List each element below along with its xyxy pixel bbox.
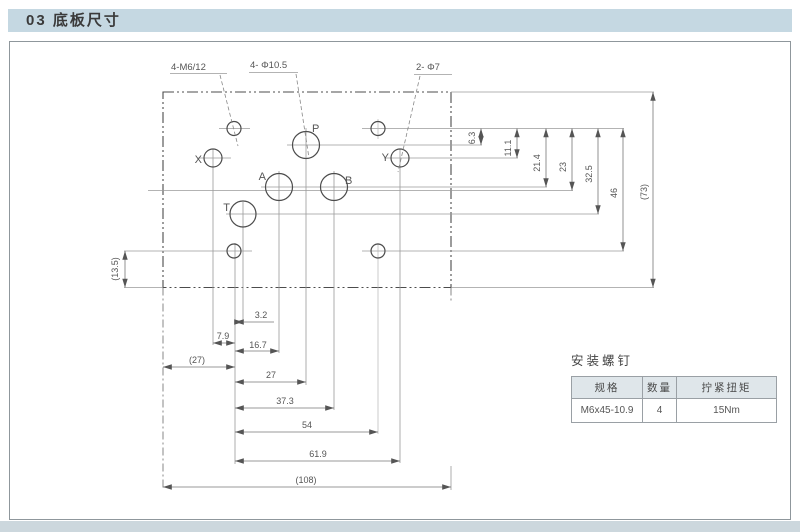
callout-leader-m6 [220,75,238,146]
dim-label-54: 54 [302,420,312,430]
dim-label-21.4: 21.4 [532,154,542,172]
callout-pilot-ports: 2- Φ7 [416,62,440,73]
dimension-lines [125,92,653,487]
technical-drawing: 6.3 11.1 21.4 23 32.5 46 (73) (13.5) 3.2… [0,0,800,532]
dim-label-32.5: 32.5 [584,165,594,183]
bottom-strip [0,521,800,532]
port-label-b: B [345,175,352,187]
col-header-spec: 规格 [572,377,643,399]
col-header-quantity: 数量 [643,377,677,399]
dim-label-7.9: 7.9 [217,331,230,341]
plate-rect [163,92,451,288]
port-label-x: X [195,154,203,166]
callout-main-ports: 4- Φ10.5 [250,60,287,71]
dim-label-46: 46 [609,188,619,198]
mounting-screw-block: 安装螺钉 规格 数量 拧紧扭矩 M6x45-10.9 4 15Nm [571,350,777,423]
dim-label-3.2: 3.2 [255,310,268,320]
page: 03 底板尺寸 [0,0,800,532]
dim-label-6.3: 6.3 [467,132,477,145]
dim-label-37.3: 37.3 [276,396,294,406]
port-label-y: Y [382,152,390,164]
dim-label-23: 23 [558,162,568,172]
cell-spec: M6x45-10.9 [572,399,643,423]
centerlines [124,119,624,464]
callout-m6-holes: 4-M6/12 [171,62,206,73]
dim-label-13.5: (13.5) [110,257,120,281]
dim-label-16.7: 16.7 [249,340,267,350]
dim-label-61.9: 61.9 [309,449,327,459]
port-labels: X P Y A B T [195,123,390,214]
screw-table: 规格 数量 拧紧扭矩 M6x45-10.9 4 15Nm [571,376,777,423]
callout-labels: 4-M6/12 4- Φ10.5 2- Φ7 [171,60,440,73]
plate-outline [124,92,654,490]
screw-table-header-row: 规格 数量 拧紧扭矩 [572,377,777,399]
dim-label-11.1: 11.1 [503,140,513,157]
cell-torque: 15Nm [677,399,777,423]
dim-label-27: 27 [266,370,276,380]
cell-quantity: 4 [643,399,677,423]
dim-label-73: (73) [639,184,649,200]
screw-table-data-row: M6x45-10.9 4 15Nm [572,399,777,423]
dim-label-27-ref: (27) [189,355,205,365]
dim-label-108: (108) [295,475,316,485]
port-label-p: P [312,123,319,135]
dimension-labels: 6.3 11.1 21.4 23 32.5 46 (73) (13.5) 3.2… [110,132,649,485]
col-header-torque: 拧紧扭矩 [677,377,777,399]
screw-table-title: 安装螺钉 [571,350,777,369]
port-label-a: A [259,171,267,183]
port-label-t: T [223,202,230,214]
